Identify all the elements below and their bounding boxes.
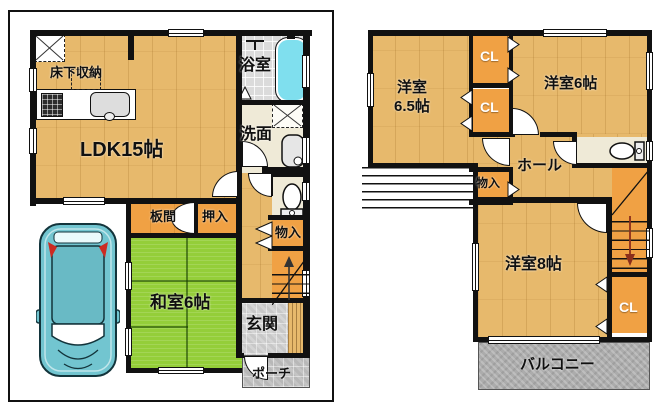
closet-door-icon	[595, 276, 608, 293]
wall	[469, 167, 513, 172]
closet-door-icon	[460, 89, 473, 106]
closet-door-icon	[507, 36, 520, 53]
laundry-space-x-icon	[272, 103, 303, 128]
wall	[236, 353, 244, 358]
tatami-joint	[126, 326, 188, 328]
window	[302, 55, 310, 88]
wall	[30, 30, 36, 206]
floor2-plan: 洋室 6.5帖 CL CL 洋室6帖 ホール 物入 洋室8帖 CL バルコニー	[340, 0, 658, 415]
toilet-icon	[608, 139, 648, 163]
room-label: 和室6帖	[150, 294, 210, 311]
room-label: 押入	[202, 210, 228, 223]
room-label: 洗面	[240, 127, 272, 143]
closet-label: CL	[480, 100, 499, 114]
window	[168, 29, 204, 37]
room-label: 洋室8帖	[505, 257, 562, 273]
closet-door-icon	[460, 115, 473, 132]
wall	[268, 215, 310, 220]
room-label: 6.5帖	[394, 99, 430, 114]
room-label: ホール	[517, 158, 562, 173]
room-label: 洋室	[397, 80, 427, 95]
stairs-down-arrow-icon	[612, 168, 649, 272]
room-label: ポーチ	[252, 367, 291, 380]
wall	[268, 353, 310, 358]
room-label: 玄関	[246, 317, 278, 333]
fridge-space-x-icon	[34, 34, 65, 62]
closet-label: CL	[480, 49, 499, 63]
wall	[268, 172, 310, 177]
room-label: LDK15帖	[80, 140, 163, 160]
wall	[473, 83, 509, 88]
wall	[368, 163, 478, 168]
window	[543, 29, 607, 37]
wall	[126, 233, 242, 238]
floor1-plan: 床下収納 LDK15帖 浴室 洗面 板間 押入 物入 和室6帖 玄関 ポーチ	[0, 0, 340, 415]
wall	[30, 198, 242, 204]
tatami-joint	[126, 280, 242, 282]
floor-plan-image: 床下収納 LDK15帖 浴室 洗面 板間 押入 物入 和室6帖 玄関 ポーチ	[0, 0, 658, 415]
wall	[128, 30, 134, 60]
window	[29, 68, 37, 92]
window	[302, 182, 310, 201]
wall	[469, 132, 513, 137]
sink-faucet	[104, 112, 115, 121]
roof-eaves-stripes	[362, 167, 473, 212]
stove	[41, 93, 63, 117]
shower-icon	[244, 37, 266, 51]
room-label: 板間	[150, 210, 176, 223]
closet-label: CL	[619, 300, 638, 314]
room-label: 浴室	[239, 58, 271, 74]
window	[646, 141, 653, 161]
window	[488, 336, 600, 344]
window	[63, 197, 105, 205]
stairs-up-arrow-icon	[272, 250, 310, 305]
window	[158, 367, 204, 374]
closet-door-icon	[595, 318, 608, 335]
window	[302, 137, 310, 164]
window	[29, 128, 37, 154]
wall	[612, 272, 652, 277]
window	[125, 328, 132, 356]
window	[125, 262, 132, 290]
window	[472, 243, 479, 291]
window	[646, 52, 653, 90]
car-top-view	[36, 218, 120, 382]
room-label: 物入	[275, 226, 301, 239]
bifold-door-icon	[253, 221, 273, 251]
room-label: 床下収納	[50, 66, 102, 79]
room-label: 洋室6帖	[544, 76, 597, 91]
room-label: 物入	[476, 177, 500, 189]
wall	[236, 100, 310, 105]
window	[367, 73, 374, 107]
room-label: バルコニー	[520, 357, 595, 372]
closet-door-icon	[507, 67, 520, 84]
closet-door-icon	[507, 181, 520, 198]
